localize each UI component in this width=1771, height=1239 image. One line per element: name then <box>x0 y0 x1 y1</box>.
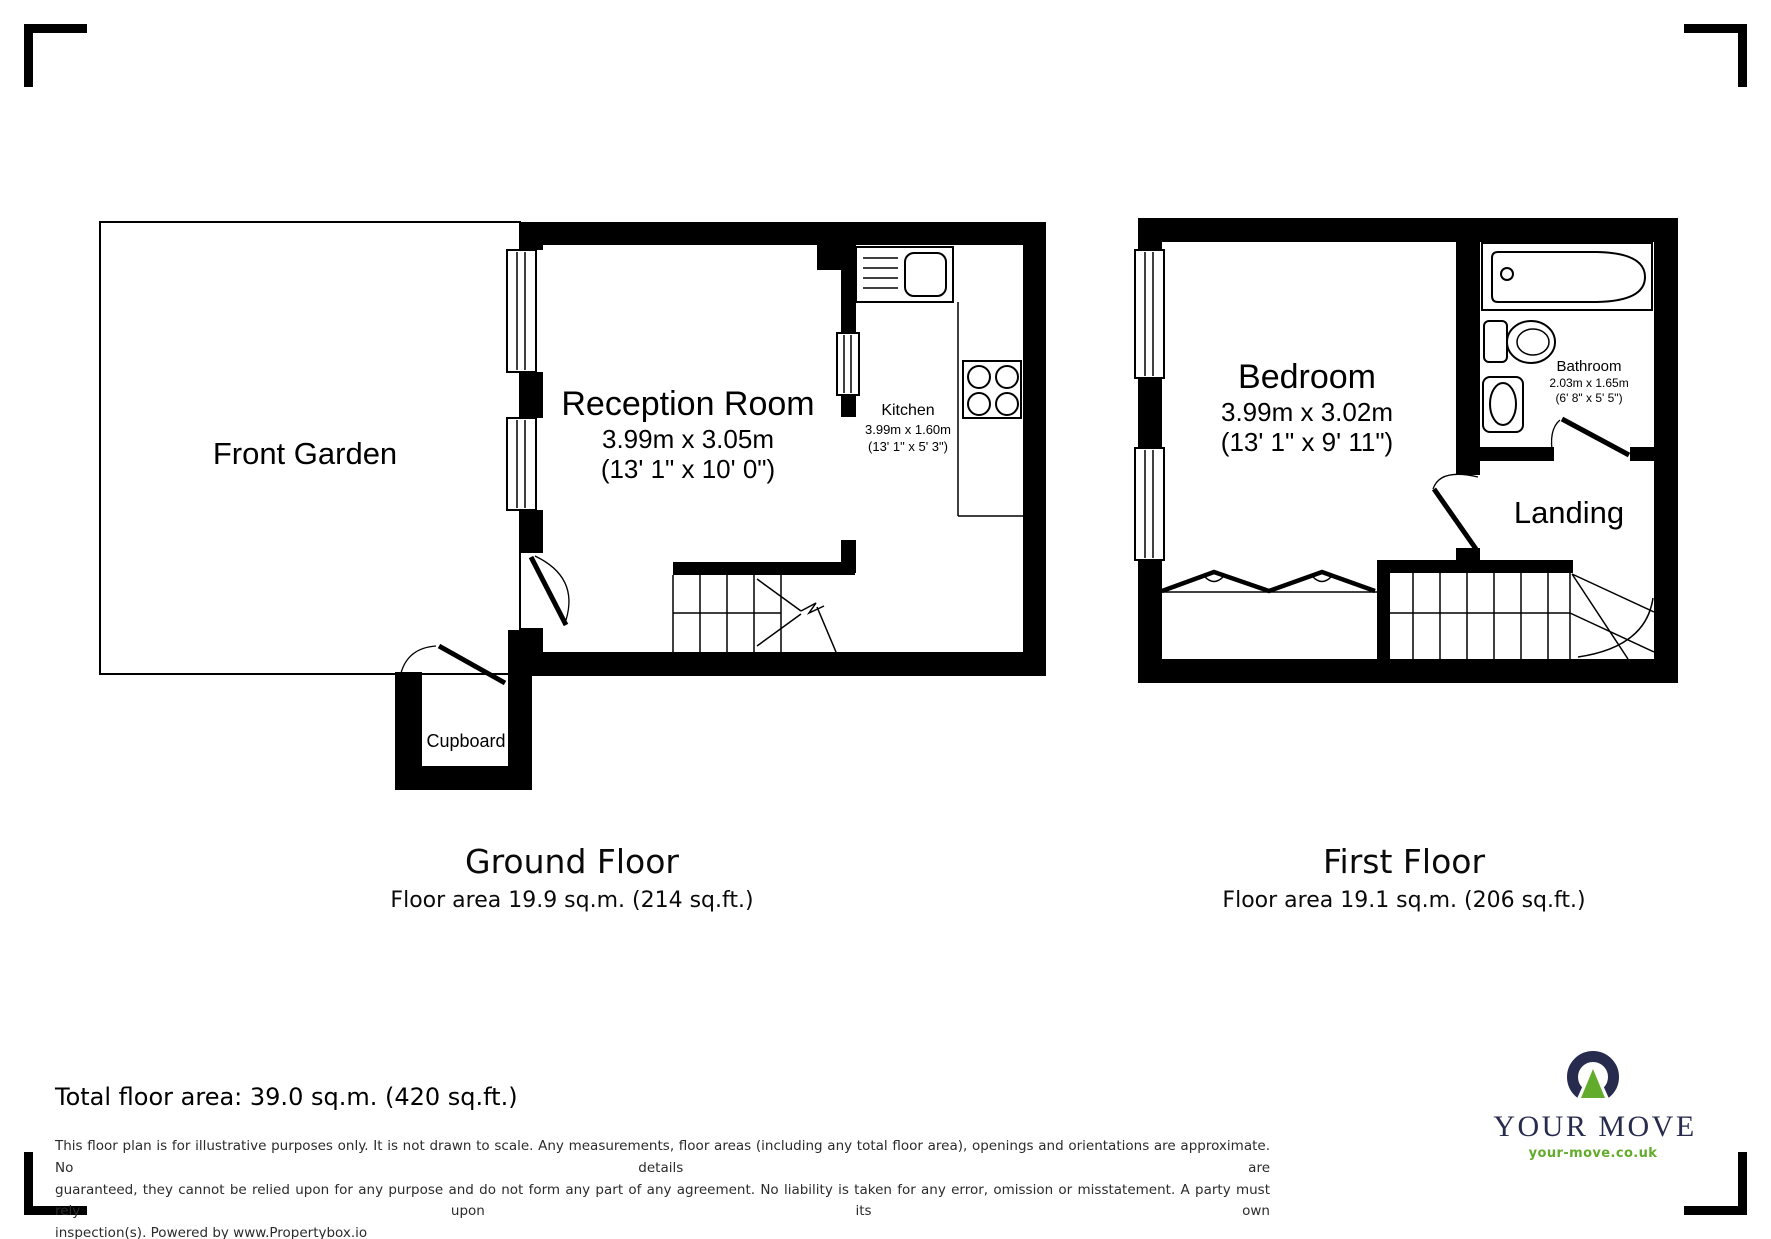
reception-room-size-imperial: (13' 1" x 10' 0") <box>561 454 814 484</box>
cupboard-label: Cupboard <box>426 731 505 752</box>
bathroom-size-imperial: (6' 8" x 5' 5") <box>1549 391 1628 406</box>
kitchen-size-metric: 3.99m x 1.60m <box>865 421 951 438</box>
ground-floor-plan <box>100 222 1046 790</box>
hob-icon <box>963 361 1021 418</box>
total-floor-area: Total floor area: 39.0 sq.m. (420 sq.ft.… <box>55 1083 518 1111</box>
first-floor-area-caption: Floor area 19.1 sq.m. (206 sq.ft.) <box>1222 888 1585 913</box>
disclaimer: This floor plan is for illustrative purp… <box>55 1136 1270 1239</box>
wardrobe-icon <box>1162 572 1377 592</box>
bathroom-size-metric: 2.03m x 1.65m <box>1549 376 1628 391</box>
bedroom-size-imperial: (13' 1" x 9' 11") <box>1221 427 1393 457</box>
bedroom-door <box>1433 474 1478 549</box>
kitchen-size-imperial: (13' 1" x 5' 3") <box>865 438 951 455</box>
bathroom-label: Bathroom 2.03m x 1.65m (6' 8" x 5' 5") <box>1549 358 1628 406</box>
ground-floor-caption: Ground Floor <box>465 842 679 881</box>
disclaimer-line-2: guaranteed, they cannot be relied upon f… <box>55 1180 1270 1224</box>
your-move-logo-icon <box>1563 1048 1623 1108</box>
bedroom-size-metric: 3.99m x 3.02m <box>1221 397 1393 427</box>
kitchen-label: Kitchen 3.99m x 1.60m (13' 1" x 5' 3") <box>865 401 951 455</box>
bathroom-name: Bathroom <box>1549 358 1628 376</box>
ground-walls <box>395 222 1046 790</box>
sink-icon <box>856 247 953 302</box>
bedroom-label: Bedroom 3.99m x 3.02m (13' 1" x 9' 11") <box>1221 358 1393 457</box>
ground-stairs <box>673 575 836 652</box>
bathtub-icon <box>1482 243 1652 310</box>
floorplan-linework <box>0 0 1771 1239</box>
basin-icon <box>1483 377 1523 432</box>
first-floor-caption: First Floor <box>1323 842 1485 881</box>
bathroom-door <box>1552 419 1629 456</box>
disclaimer-line-1: This floor plan is for illustrative purp… <box>55 1136 1270 1180</box>
first-floor-plan <box>1135 218 1678 683</box>
reception-room-label: Reception Room 3.99m x 3.05m (13' 1" x 1… <box>561 385 814 484</box>
landing-label: Landing <box>1514 495 1624 531</box>
your-move-brand: YOUR MOVE <box>1493 1110 1696 1144</box>
disclaimer-line-3: inspection(s). Powered by www.Propertybo… <box>55 1223 1270 1239</box>
toilet-icon <box>1484 321 1555 363</box>
ground-floor-area-caption: Floor area 19.9 sq.m. (214 sq.ft.) <box>390 888 753 913</box>
kitchen-name: Kitchen <box>865 401 951 421</box>
first-stairs <box>1390 573 1654 659</box>
reception-room-size-metric: 3.99m x 3.05m <box>561 424 814 454</box>
reception-room-name: Reception Room <box>561 385 814 424</box>
front-door <box>531 556 569 625</box>
bedroom-name: Bedroom <box>1221 358 1393 397</box>
your-move-website: your-move.co.uk <box>1529 1146 1658 1161</box>
floorplan-page: Front Garden Reception Room 3.99m x 3.05… <box>0 0 1771 1239</box>
front-garden-label: Front Garden <box>213 436 397 472</box>
